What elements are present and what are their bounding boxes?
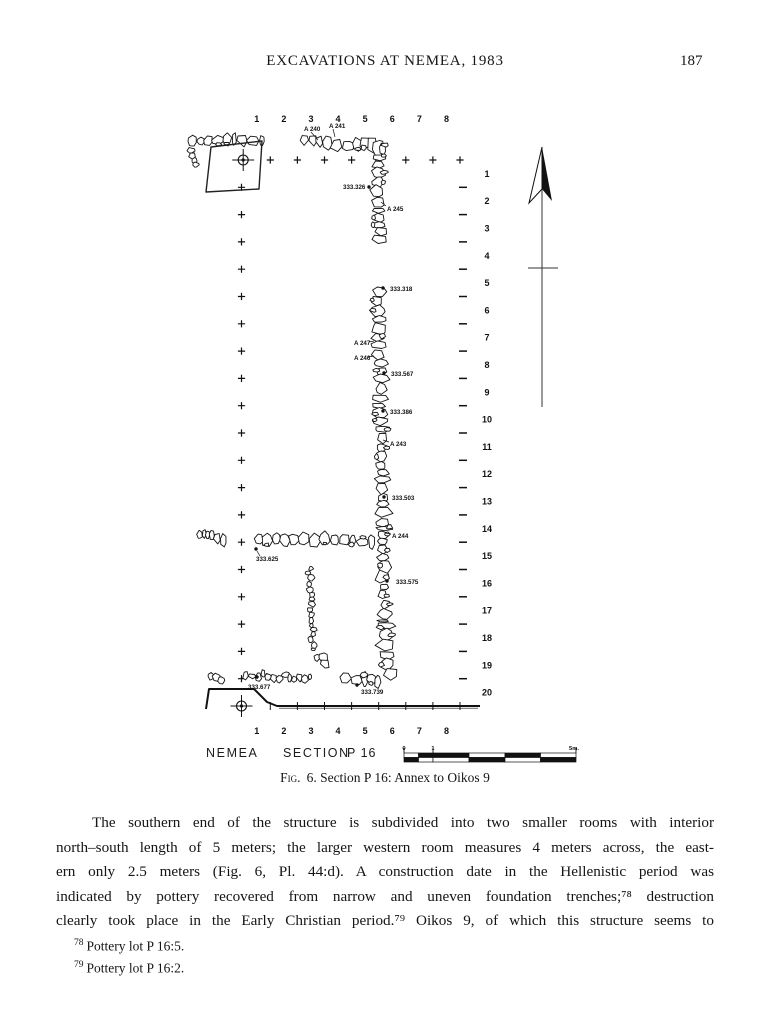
svg-text:20: 20 — [482, 688, 492, 698]
svg-text:2: 2 — [281, 726, 286, 736]
body-line: clearly took place in the Early Christia… — [56, 909, 714, 934]
svg-text:11: 11 — [482, 442, 492, 452]
plan-section-number: P 16 — [347, 746, 377, 760]
svg-text:5m.: 5m. — [569, 746, 579, 752]
svg-text:18: 18 — [482, 633, 492, 643]
svg-text:A 241: A 241 — [329, 123, 346, 130]
svg-text:12: 12 — [482, 469, 492, 479]
svg-text:1: 1 — [484, 169, 489, 179]
svg-text:A 246: A 246 — [354, 355, 371, 362]
svg-text:10: 10 — [482, 415, 492, 425]
svg-text:1: 1 — [254, 114, 259, 124]
svg-text:8: 8 — [444, 726, 449, 736]
svg-text:8: 8 — [484, 360, 489, 370]
plan-walls — [187, 133, 397, 689]
svg-text:1: 1 — [254, 726, 259, 736]
figure-caption: Fig.6. Section P 16: Annex to Oikos 9 — [0, 770, 770, 786]
svg-text:9: 9 — [484, 387, 489, 397]
body-line: ern only 2.5 meters (Fig. 6, Pl. 44:d). … — [56, 860, 714, 885]
svg-text:5: 5 — [484, 278, 489, 288]
plan-elevation-labels: A 240A 241333.326A 245333.318A 247A 2463… — [248, 123, 419, 696]
svg-text:7: 7 — [417, 114, 422, 124]
plan-grid: 1122334455667788123456789101112131415161… — [231, 114, 493, 736]
svg-text:333.625: 333.625 — [256, 556, 279, 563]
svg-text:333.503: 333.503 — [392, 495, 415, 502]
svg-text:16: 16 — [482, 578, 492, 588]
svg-text:A 243: A 243 — [390, 441, 407, 448]
svg-text:333.326: 333.326 — [343, 184, 366, 191]
svg-text:5: 5 — [363, 114, 368, 124]
svg-text:6: 6 — [484, 305, 489, 315]
svg-text:3: 3 — [308, 726, 313, 736]
svg-text:1: 1 — [431, 746, 435, 752]
svg-text:333.318: 333.318 — [390, 286, 413, 293]
svg-text:A 240: A 240 — [304, 126, 321, 133]
plan-section-label: SECTION — [283, 746, 350, 760]
footnotes: 78Pottery lot P 16:5. 79Pottery lot P 16… — [74, 934, 184, 978]
svg-text:333.386: 333.386 — [390, 409, 413, 416]
svg-text:5: 5 — [363, 726, 368, 736]
svg-text:333.575: 333.575 — [396, 579, 419, 586]
body-line: The southern end of the structure is sub… — [56, 811, 714, 836]
svg-text:4: 4 — [484, 251, 489, 261]
svg-text:6: 6 — [390, 726, 395, 736]
body-text: The southern end of the structure is sub… — [56, 811, 714, 934]
svg-text:14: 14 — [482, 524, 492, 534]
footnote-text: Pottery lot P 16:5. — [87, 939, 185, 954]
svg-text:13: 13 — [482, 496, 492, 506]
footnote-number: 78 — [74, 938, 84, 948]
svg-text:333.567: 333.567 — [391, 371, 414, 378]
footnote: 79Pottery lot P 16:2. — [74, 956, 184, 978]
svg-text:A 247: A 247 — [354, 340, 371, 347]
body-line: indicated by pottery recovered from narr… — [56, 885, 714, 910]
footnote-text: Pottery lot P 16:2. — [87, 961, 185, 976]
trench-outline — [206, 141, 262, 192]
svg-text:2: 2 — [281, 114, 286, 124]
footnote: 78Pottery lot P 16:5. — [74, 934, 184, 956]
scarp-line — [206, 689, 480, 710]
svg-text:2: 2 — [484, 196, 489, 206]
body-line: north–south length of 5 meters; the larg… — [56, 836, 714, 861]
svg-text:8: 8 — [444, 114, 449, 124]
figure-caption-text: 6. Section P 16: Annex to Oikos 9 — [307, 770, 490, 785]
svg-text:333.739: 333.739 — [361, 689, 384, 696]
figure-caption-label: Fig. — [280, 770, 300, 785]
svg-text:6: 6 — [390, 114, 395, 124]
plan-site-label: NEMEA — [206, 746, 258, 760]
svg-text:7: 7 — [417, 726, 422, 736]
north-arrow-icon — [528, 147, 558, 407]
svg-text:7: 7 — [484, 333, 489, 343]
svg-text:A 244: A 244 — [392, 533, 409, 540]
journal-page: EXCAVATIONS AT NEMEA, 1983 187 112233445… — [0, 0, 770, 1024]
scale-bar: 015m. — [402, 746, 579, 762]
svg-text:19: 19 — [482, 660, 492, 670]
svg-text:3: 3 — [484, 223, 489, 233]
svg-text:0: 0 — [402, 746, 405, 752]
svg-text:15: 15 — [482, 551, 492, 561]
svg-text:A 245: A 245 — [387, 206, 404, 213]
svg-text:17: 17 — [482, 606, 492, 616]
svg-text:3: 3 — [308, 114, 313, 124]
svg-text:4: 4 — [336, 726, 341, 736]
footnote-number: 79 — [74, 960, 84, 970]
